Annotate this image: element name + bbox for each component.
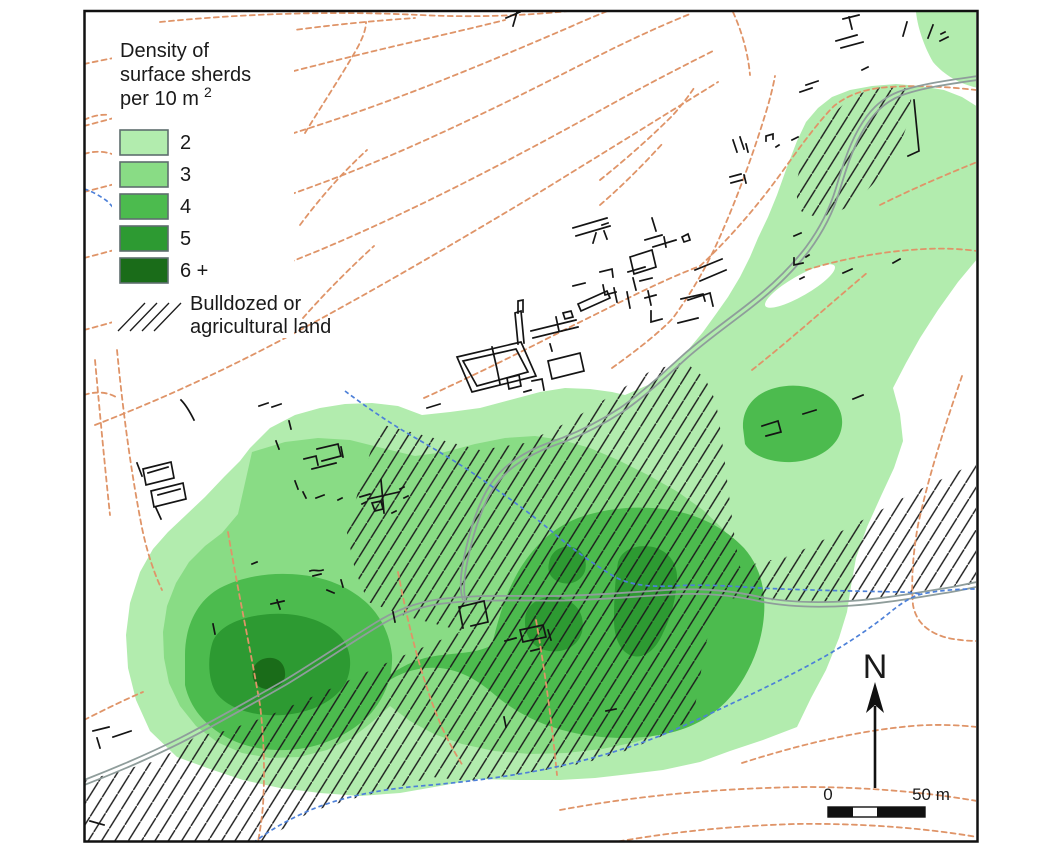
density-label-3: 3 [180, 164, 191, 186]
north-label: N [863, 648, 888, 686]
scale-bar-segment-1 [828, 807, 853, 817]
scale-end-label: 50 m [912, 785, 950, 804]
hatch-label-line-2: agricultural land [190, 316, 331, 338]
legend-density-swatches [120, 130, 168, 283]
density-swatch-6plus [120, 258, 168, 283]
map-canvas: Density of surface sherds per 10 m 2 2 3… [0, 0, 1061, 850]
legend-title-line-1: Density of [120, 40, 209, 62]
density-label-6plus: 6 + [180, 260, 208, 282]
north-arrow: N [863, 648, 888, 788]
density-region-level-6 [253, 658, 286, 689]
scale-bar-segment-2 [877, 807, 925, 817]
density-swatch-3 [120, 162, 168, 187]
density-label-5: 5 [180, 228, 191, 250]
scale-start-label: 0 [823, 785, 832, 804]
legend-title-line-2: surface sherds [120, 64, 251, 86]
density-label-4: 4 [180, 196, 191, 218]
density-swatch-2 [120, 130, 168, 155]
map-figure: Density of surface sherds per 10 m 2 2 3… [0, 0, 1061, 850]
west-building [143, 462, 174, 485]
legend-title-line-3: per 10 m [120, 88, 199, 110]
legend: Density of surface sherds per 10 m 2 2 3… [112, 26, 331, 338]
density-swatch-5 [120, 226, 168, 251]
stream-northwest [84, 189, 115, 210]
density-label-2: 2 [180, 132, 191, 154]
density-swatch-4 [120, 194, 168, 219]
hatch-label-line-1: Bulldozed or [190, 293, 302, 315]
legend-title-superscript: 2 [204, 84, 212, 100]
